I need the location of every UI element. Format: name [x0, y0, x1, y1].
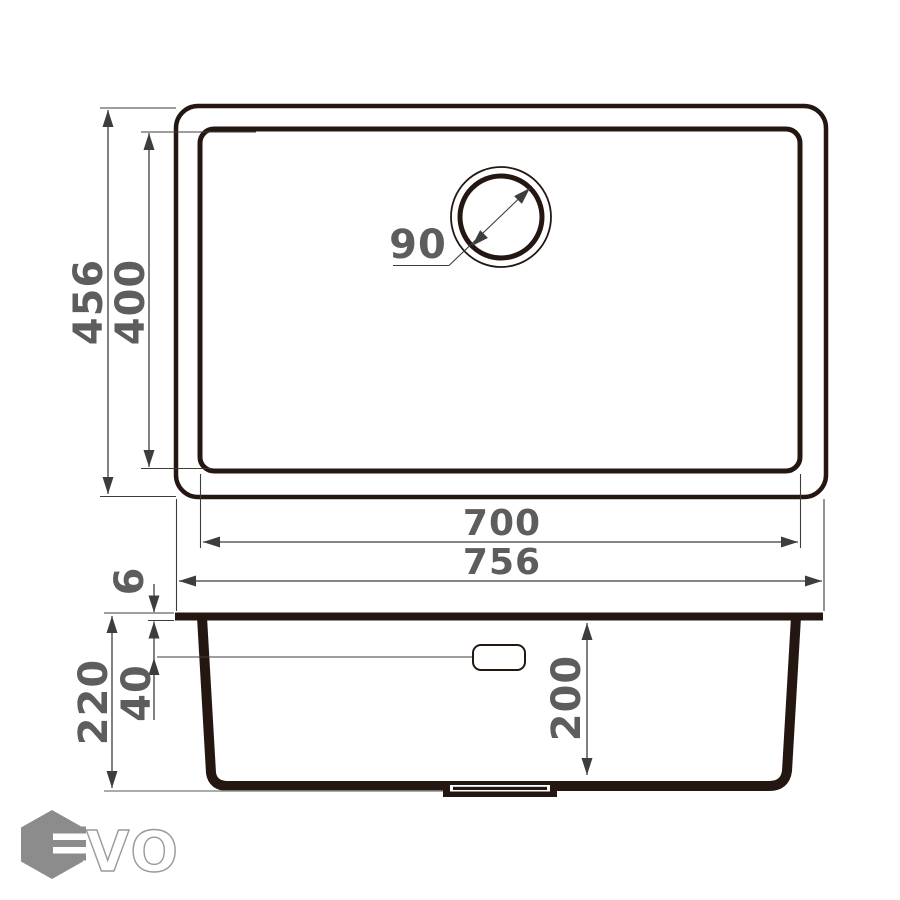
arrowhead-icon	[103, 477, 114, 494]
arrowhead-icon	[107, 771, 118, 788]
arrowhead-icon	[781, 537, 798, 548]
dim-label-overall-width: 756	[463, 542, 541, 583]
dim-label-total-height: 220	[71, 659, 117, 746]
sink-outer-rim-outline	[176, 106, 826, 497]
dim-label-overall-depth: 456	[66, 259, 112, 346]
arrowhead-icon	[179, 576, 196, 587]
top-view-horizontal-dimensions: 700 756	[177, 474, 825, 611]
logo-e-bar	[56, 854, 86, 861]
sink-technical-drawing: 90 456 400 700 756	[0, 0, 900, 900]
logo-e-bar	[56, 840, 86, 847]
arrowhead-icon	[144, 450, 155, 467]
evo-logo: VO	[21, 810, 180, 885]
overflow-opening	[473, 645, 525, 670]
arrowhead-icon	[582, 623, 593, 640]
drain-fitting-flange	[453, 787, 547, 790]
dim-label-bowl-width: 700	[463, 503, 541, 544]
dim-label-bowl-inner-depth: 200	[544, 655, 590, 742]
top-view-vertical-dimensions: 456 400	[66, 108, 256, 497]
sink-rim-section	[175, 613, 823, 621]
arrowhead-icon	[107, 616, 118, 633]
logo-text: VO	[86, 820, 180, 885]
logo-e-bar	[56, 827, 86, 834]
arrowhead-icon	[582, 758, 593, 775]
drawing-svg: 90 456 400 700 756	[0, 0, 900, 900]
arrowhead-icon	[103, 110, 114, 127]
side-view-dimensions: 6 40 220 200	[71, 567, 593, 791]
arrowhead-icon	[149, 596, 160, 613]
arrowhead-icon	[203, 537, 220, 548]
dim-label-overflow-offset: 40	[114, 664, 160, 722]
sink-bowl-outline	[200, 129, 800, 471]
dim-label-bowl-depth: 400	[108, 259, 154, 346]
dim-label-rim-thickness: 6	[107, 567, 153, 596]
drain-outer-circle	[451, 167, 551, 267]
side-view	[157, 613, 823, 798]
top-view: 90	[176, 106, 826, 497]
arrowhead-icon	[144, 133, 155, 150]
dim-label-drain-diameter: 90	[389, 222, 447, 268]
arrowhead-icon	[805, 576, 822, 587]
sink-bowl-section	[202, 617, 796, 786]
